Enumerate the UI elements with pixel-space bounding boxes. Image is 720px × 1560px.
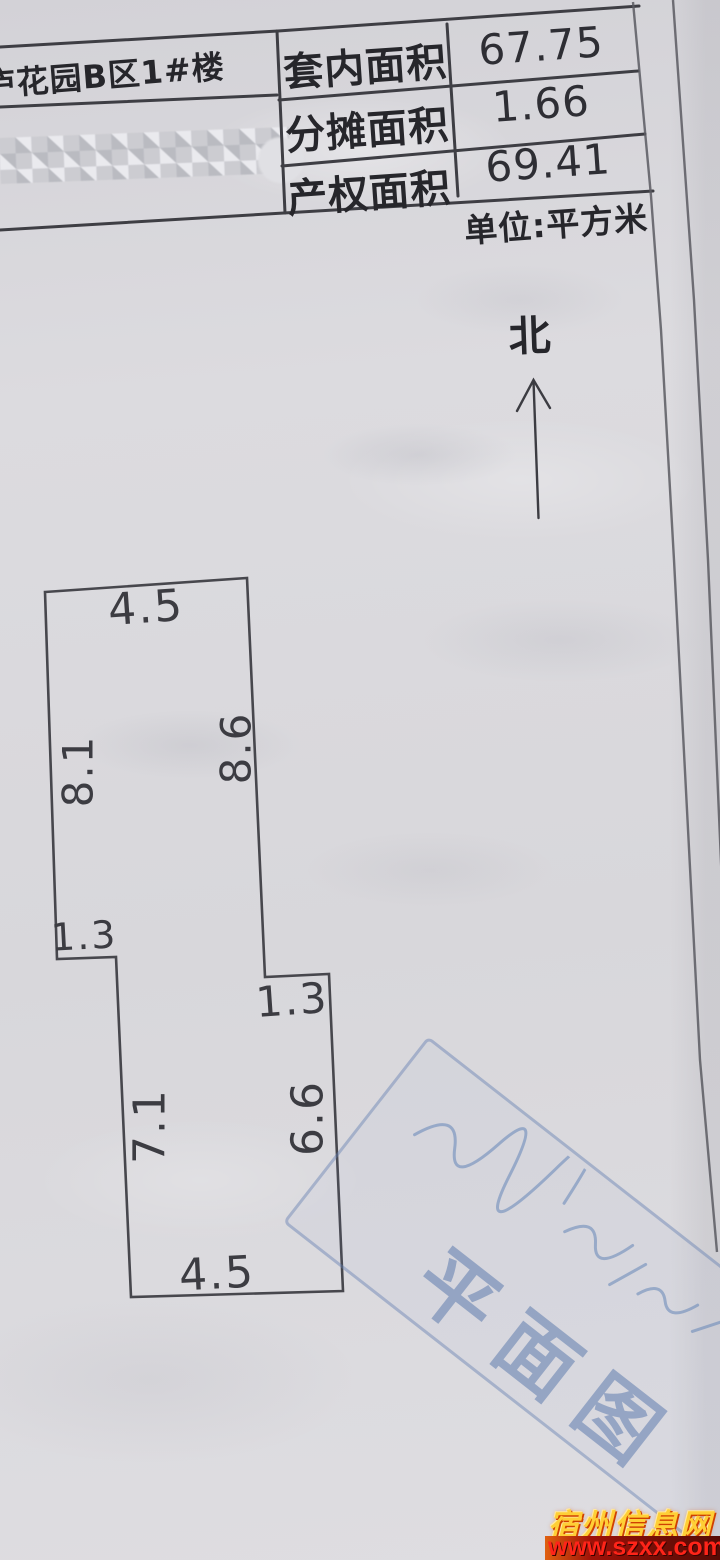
area-row-value: 1.66 (491, 76, 592, 132)
dim-upper-right: 8.6 (212, 712, 261, 785)
area-row-label: 分摊面积 (283, 92, 451, 161)
north-label: 北 (507, 302, 552, 364)
area-row-value: 67.75 (477, 17, 605, 75)
dim-lower-left: 7.1 (125, 1088, 176, 1164)
area-row-label: 套内面积 (281, 29, 449, 98)
north-arrow-icon (517, 380, 550, 518)
page-edge-lines (633, 0, 720, 1252)
dim-bottom-width: 4.5 (178, 1247, 257, 1302)
dim-left-step: 1.3 (50, 912, 119, 959)
document-photo: 庐花园B区1#楼 套内面积 67.75 分摊面积 1.66 产权面积 69.41… (0, 0, 720, 1560)
area-row-value: 69.41 (484, 134, 612, 192)
watermark-url-strip: www.szxx.com.cn (545, 1536, 720, 1560)
watermark-url: www.szxx.com.cn (545, 1536, 720, 1559)
area-row-label: 产权面积 (285, 155, 453, 224)
dim-top-width: 4.5 (106, 580, 185, 636)
dim-right-step: 1.3 (254, 973, 330, 1027)
dim-upper-left: 8.1 (54, 735, 103, 808)
dim-lower-right: 6.6 (283, 1080, 334, 1156)
